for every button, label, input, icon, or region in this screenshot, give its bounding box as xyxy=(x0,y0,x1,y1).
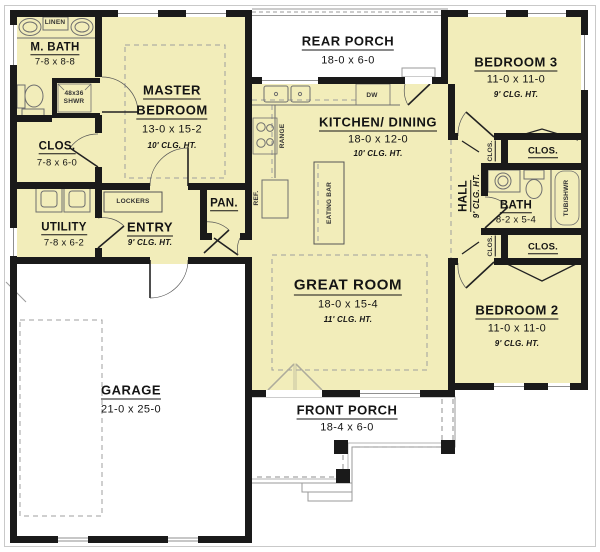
eating-bar-label: EATING BAR xyxy=(327,182,334,224)
floor-plan: M. BATH 7-8 x 8-8 LINEN 48x36 SHWR CLOS.… xyxy=(0,0,600,552)
dw-label: DW xyxy=(366,93,377,100)
hall-clg: 9' CLG. HT. xyxy=(473,174,481,218)
front-porch-dims: 18-4 x 6-0 xyxy=(320,423,374,434)
front-porch-label: FRONT PORCH xyxy=(297,404,398,417)
bedroom2-label: BEDROOM 2 xyxy=(475,304,558,317)
linen-label: LINEN xyxy=(45,20,66,27)
master-bedroom-label-2: BEDROOM xyxy=(136,104,207,117)
master-bedroom-clg: 10' CLG. HT. xyxy=(147,142,196,150)
master-bedroom-label-1: MASTER xyxy=(143,84,201,97)
master-closet-dims: 7-8 x 6-0 xyxy=(37,158,77,168)
kitchen-clg: 10' CLG. HT. xyxy=(353,150,402,158)
range-label: RANGE xyxy=(280,124,287,148)
ref-label: REF. xyxy=(254,191,261,206)
bedroom3-label: BEDROOM 3 xyxy=(474,56,557,69)
bedroom3-closet-label: CLOS. xyxy=(528,146,558,156)
bath-label: BATH xyxy=(500,200,532,212)
garage-dims: 21-0 x 25-0 xyxy=(101,405,161,416)
shower-label: SHWR xyxy=(64,99,85,106)
entry-label: ENTRY xyxy=(127,221,173,234)
rear-porch-dims: 18-0 x 6-0 xyxy=(321,56,375,67)
entry-clg: 9' CLG. HT. xyxy=(128,239,172,247)
bedroom2-dims: 11-0 x 11-0 xyxy=(488,324,546,335)
kitchen-dims: 18-0 x 12-0 xyxy=(348,135,408,146)
hall-closet-top-label: CLOS. xyxy=(488,141,495,162)
master-bedroom-dims: 13-0 x 15-2 xyxy=(142,125,202,136)
bedroom2-closet-label: CLOS. xyxy=(528,242,558,252)
garage-dashed-outline xyxy=(20,320,102,516)
tub-label: TUB/SHWR xyxy=(564,180,571,217)
utility-label: UTILITY xyxy=(41,222,87,234)
shower-size-label: 48x36 xyxy=(64,91,83,98)
kitchen-label: KITCHEN/ DINING xyxy=(319,116,437,129)
lockers-label: LOCKERS xyxy=(116,199,149,206)
hall-label: HALL xyxy=(458,180,470,212)
utility-dims: 7-8 x 6-2 xyxy=(44,238,84,248)
bath-dims: 8-2 x 5-4 xyxy=(496,215,536,225)
bedroom2-clg: 9' CLG. HT. xyxy=(495,340,539,348)
garage-label: GARAGE xyxy=(101,384,161,397)
m-bath-dims: 7-8 x 8-8 xyxy=(35,57,75,67)
great-room-clg: 11' CLG. HT. xyxy=(324,316,372,324)
great-room-label: GREAT ROOM xyxy=(294,278,402,293)
pantry-label: PAN. xyxy=(210,198,238,210)
great-room-dims: 18-0 x 15-4 xyxy=(318,300,378,311)
bedroom3-clg: 9' CLG. HT. xyxy=(494,91,538,99)
master-closet-label: CLOS. xyxy=(39,141,76,153)
m-bath-label: M. BATH xyxy=(30,42,79,54)
rear-porch-label: REAR PORCH xyxy=(302,35,394,48)
hall-closet-bottom-label: CLOS. xyxy=(488,236,495,257)
bedroom3-dims: 11-0 x 11-0 xyxy=(487,75,545,86)
